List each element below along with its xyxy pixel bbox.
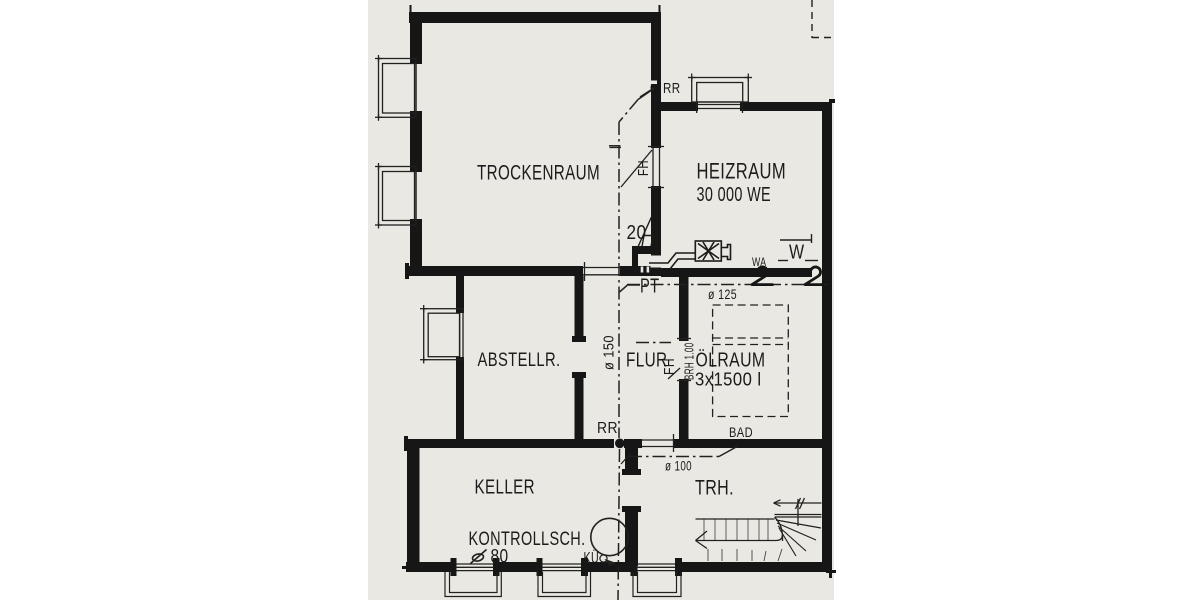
svg-text:RR: RR	[597, 420, 618, 437]
svg-text:BAD: BAD	[729, 425, 753, 440]
svg-text:KELLER: KELLER	[475, 477, 536, 499]
svg-text:BRH 1.00: BRH 1.00	[682, 343, 697, 381]
svg-text:KONTROLLSCH.: KONTROLLSCH.	[469, 528, 586, 550]
svg-text:TRH.: TRH.	[695, 477, 734, 500]
svg-text:RR: RR	[663, 80, 681, 97]
svg-text:PT: PT	[640, 276, 660, 298]
svg-text:FH: FH	[662, 358, 678, 375]
svg-text:80: 80	[491, 546, 509, 568]
svg-text:ø 100: ø 100	[665, 459, 692, 474]
svg-text:ø 150: ø 150	[601, 335, 618, 370]
svg-text:FH: FH	[636, 160, 652, 176]
svg-text:KÜ: KÜ	[584, 549, 600, 567]
svg-text:TROCKENRAUM: TROCKENRAUM	[477, 162, 600, 185]
svg-text:WA: WA	[752, 257, 767, 269]
svg-text:ø 125: ø 125	[708, 287, 737, 302]
svg-text:20: 20	[627, 222, 647, 244]
svg-text:W: W	[789, 242, 805, 264]
svg-text:HEIZRAUM: HEIZRAUM	[697, 159, 787, 184]
svg-text:ABSTELLR.: ABSTELLR.	[478, 349, 561, 371]
svg-text:3x1500 l: 3x1500 l	[695, 369, 762, 390]
svg-text:30 000 WE: 30 000 WE	[697, 184, 772, 206]
